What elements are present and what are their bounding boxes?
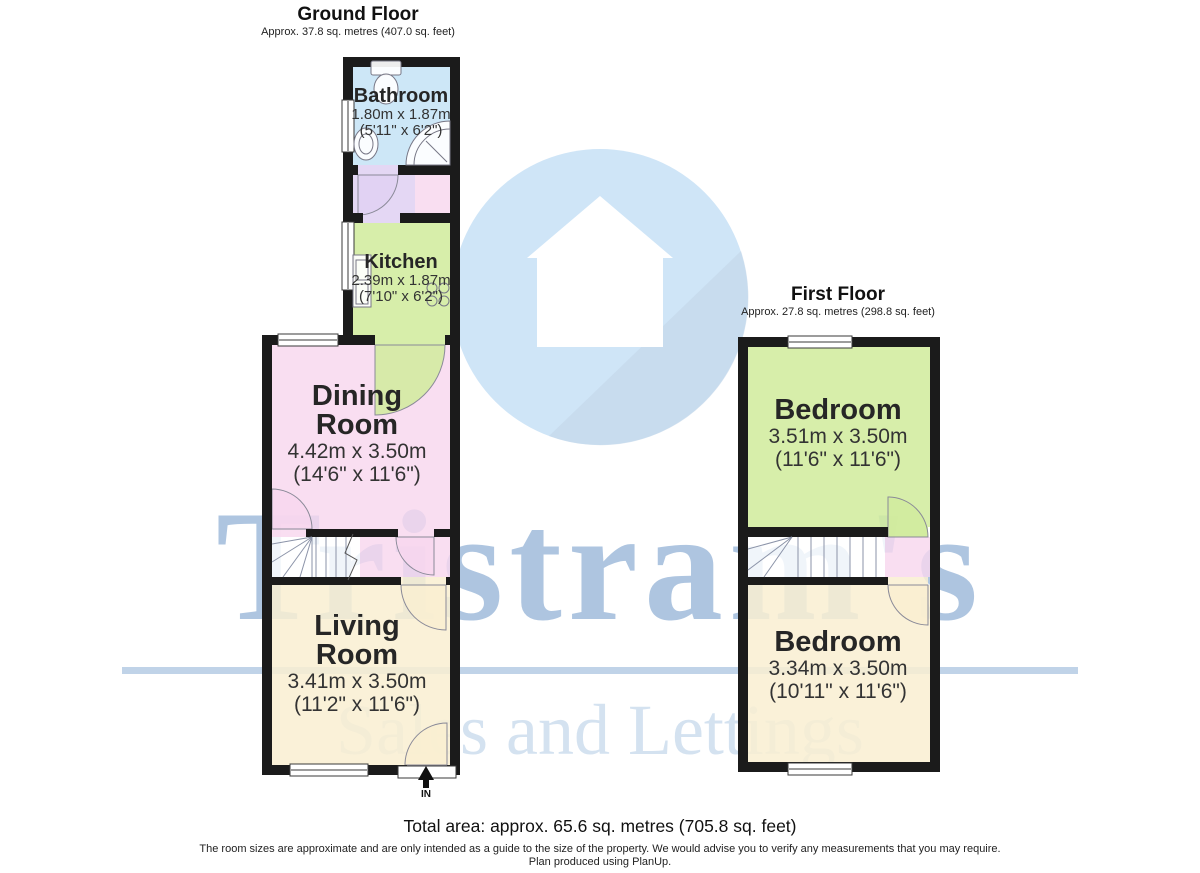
kitchen-metric: 2.39m x 1.87m (339, 273, 463, 289)
toilet-icon (371, 61, 401, 75)
bedroom2-metric: 3.34m x 3.50m (757, 657, 919, 680)
floorplan-drawing (0, 0, 1200, 873)
room-label-bedroom-2: Bedroom 3.34m x 3.50m (10'11" x 11'6") (757, 628, 919, 703)
disclaimer-line-1: The room sizes are approximate and are o… (0, 843, 1200, 855)
room-label-kitchen: Kitchen 2.39m x 1.87m (7'10" x 6'2") (339, 252, 463, 305)
bathroom-name: Bathroom (339, 86, 463, 107)
dining-room-imperial: (14'6" x 11'6") (276, 463, 438, 486)
living-room-name: Living Room (276, 612, 438, 670)
bathroom-metric: 1.80m x 1.87m (339, 107, 463, 123)
bedroom1-imperial: (11'6" x 11'6") (757, 448, 919, 471)
first-floor-title: First Floor (713, 284, 963, 306)
kitchen-name: Kitchen (339, 252, 463, 273)
dining-room-name: Dining Room (276, 382, 438, 440)
first-floor-title-block: First Floor Approx. 27.8 sq. metres (298… (713, 284, 963, 319)
room-label-dining-room: Dining Room 4.42m x 3.50m (14'6" x 11'6"… (276, 382, 438, 486)
bedroom1-name: Bedroom (757, 396, 919, 425)
bathroom-imperial: (5'11" x 6'2") (339, 123, 463, 139)
living-room-imperial: (11'2" x 11'6") (276, 693, 438, 716)
room-label-bedroom-1: Bedroom 3.51m x 3.50m (11'6" x 11'6") (757, 396, 919, 471)
room-label-bathroom: Bathroom 1.80m x 1.87m (5'11" x 6'2") (339, 86, 463, 139)
landing-floor (885, 537, 930, 577)
kitchen-imperial: (7'10" x 6'2") (339, 289, 463, 305)
ground-floor-title-block: Ground Floor Approx. 37.8 sq. metres (40… (233, 4, 483, 39)
bedroom2-doorway (888, 577, 928, 585)
ground-floor-title: Ground Floor (233, 4, 483, 26)
bedroom2-name: Bedroom (757, 628, 919, 657)
floorplan-page: Tristram's Sales and Lettings (0, 0, 1200, 873)
bedroom1-metric: 3.51m x 3.50m (757, 425, 919, 448)
total-area-text: Total area: approx. 65.6 sq. metres (705… (0, 816, 1200, 837)
dining-room-metric: 4.42m x 3.50m (276, 440, 438, 463)
bedroom2-imperial: (10'11" x 11'6") (757, 680, 919, 703)
living-room-metric: 3.41m x 3.50m (276, 670, 438, 693)
living-doorway (401, 577, 446, 585)
room-label-living-room: Living Room 3.41m x 3.50m (11'2" x 11'6"… (276, 612, 438, 716)
ground-floor-subtitle: Approx. 37.8 sq. metres (407.0 sq. feet) (233, 26, 483, 39)
first-floor-subtitle: Approx. 27.8 sq. metres (298.8 sq. feet) (713, 306, 963, 319)
disclaimer-line-2: Plan produced using PlanUp. (0, 856, 1200, 868)
kitchen-doorway (375, 335, 445, 345)
stairs-doorway (272, 529, 306, 537)
entrance-in-label: IN (405, 789, 447, 800)
